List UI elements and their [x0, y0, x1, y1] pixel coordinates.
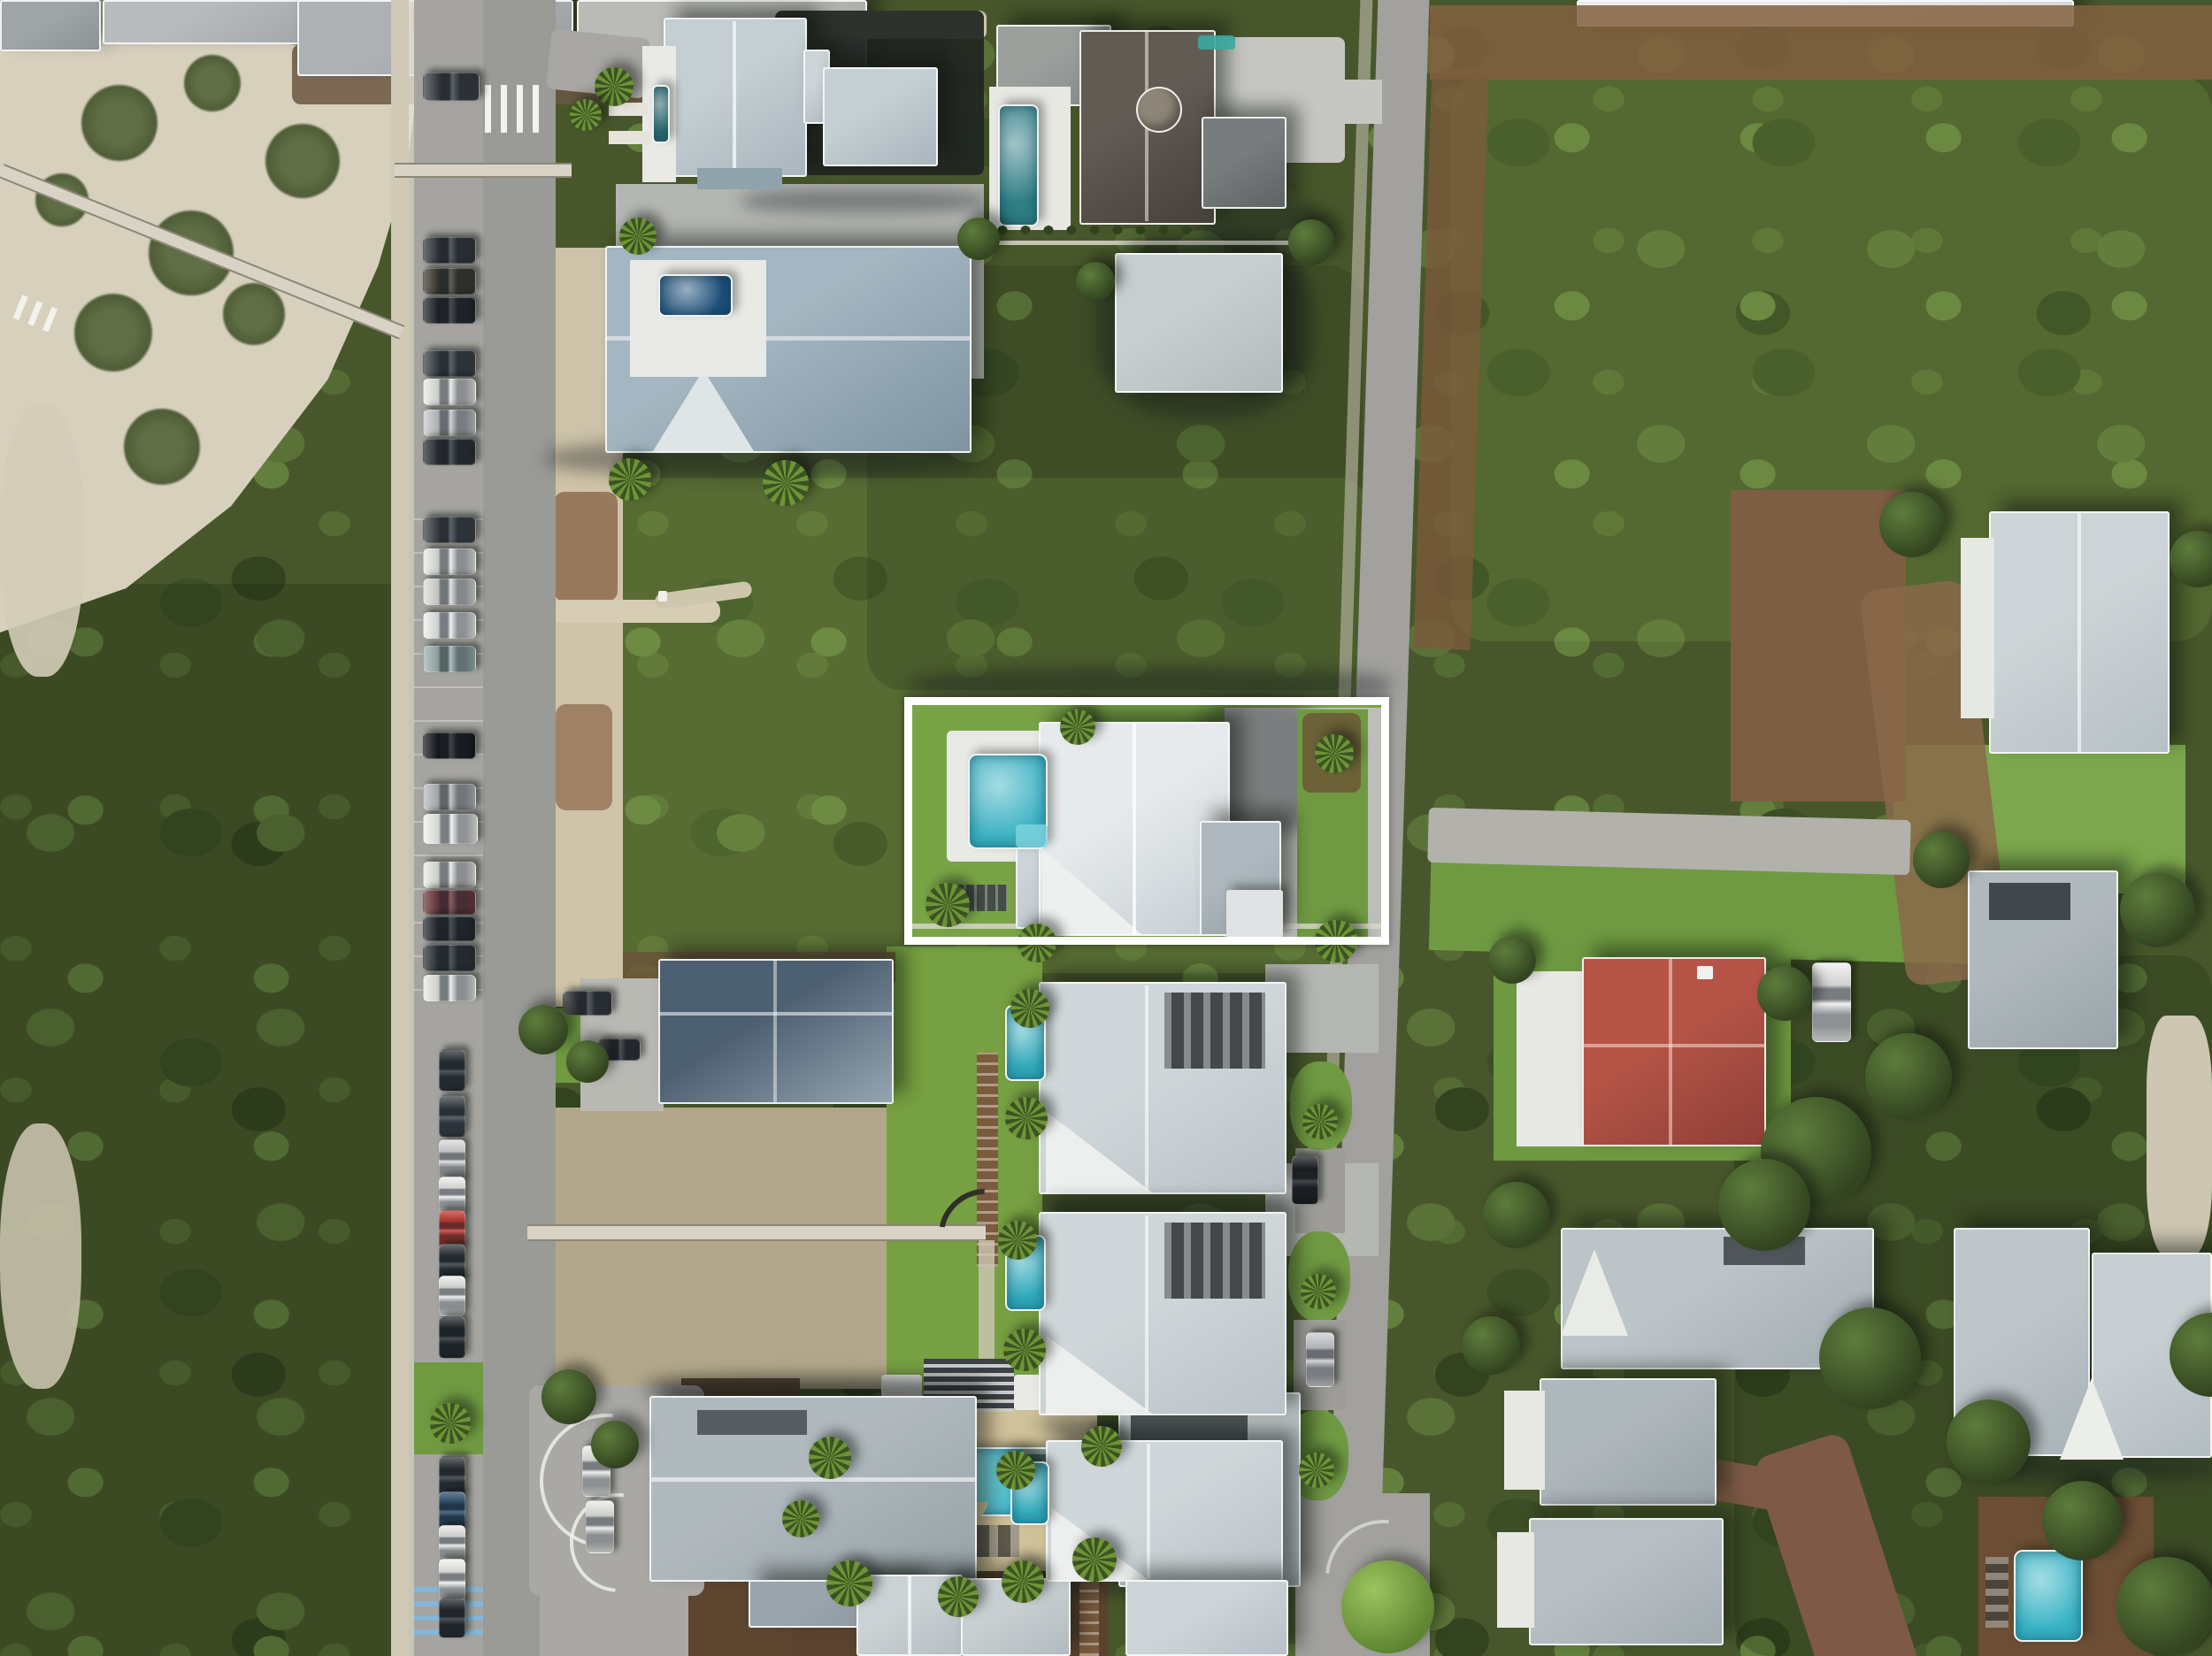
house-h3-ridge [1147, 1444, 1150, 1578]
mansion-east-wing [1202, 117, 1286, 209]
parked-car [439, 1598, 465, 1638]
parked-car [439, 1095, 465, 1138]
vacant-lot-patchy [527, 1108, 892, 1389]
palm-tree [938, 1576, 979, 1617]
parked-car [423, 379, 476, 405]
dune-sand-low [0, 1123, 81, 1389]
palm-tree [1010, 989, 1049, 1028]
tree [1879, 492, 1945, 557]
parked-car [423, 268, 476, 295]
tree [1947, 1399, 2031, 1483]
garage-t4 [1115, 253, 1283, 393]
corner-building-roof [103, 0, 303, 44]
palm-tree [1002, 1560, 1044, 1603]
tree [1718, 1159, 1810, 1251]
bay-parked-car [1306, 1332, 1334, 1387]
parked-car [423, 784, 476, 810]
house-t1-ridge [733, 21, 736, 173]
parked-car [423, 579, 476, 605]
redhouse-ridge [1584, 1044, 1764, 1047]
palm-tree [996, 1451, 1035, 1490]
house-h1-ridge [1145, 985, 1148, 1191]
driveway-car-dark [1292, 1155, 1318, 1205]
dune-scrub [81, 85, 157, 161]
t1-walk-path [609, 131, 651, 144]
house-g3 [1529, 1518, 1724, 1645]
highlight-border [904, 697, 1389, 945]
redhouse [1582, 957, 1766, 1146]
palm-tree [619, 218, 657, 255]
palm-tree [782, 1500, 819, 1537]
trail-post [658, 591, 667, 602]
parked-car [439, 1139, 465, 1182]
parked-car [423, 732, 476, 759]
bikes-teal [1198, 35, 1235, 50]
boardwalk-horizontal [527, 1224, 986, 1241]
parked-car [423, 646, 476, 672]
house-r2-solar [1989, 883, 2070, 920]
ground-shadow [741, 189, 989, 212]
palm-tree [1005, 1097, 1048, 1139]
aerial-photo-stage [0, 0, 2212, 1656]
pool-r4 [2014, 1550, 2083, 1642]
house-t1-guest [823, 67, 938, 166]
t1-pool [652, 85, 670, 143]
house-r1-porch [1961, 538, 1994, 718]
palm-tree [1301, 1274, 1336, 1309]
parked-car [439, 1316, 465, 1359]
house-w1-ridge [773, 959, 777, 1102]
t2-driveway-stub [1290, 80, 1382, 124]
tree [2120, 872, 2195, 947]
tree [1819, 1307, 1921, 1409]
tree [1288, 219, 1334, 265]
tree [1462, 1316, 1520, 1375]
tree [1483, 1182, 1549, 1248]
r3-sand-patch [2147, 1016, 2212, 1256]
parked-car [423, 350, 476, 377]
palm-tree [998, 1221, 1037, 1260]
palm-tree [609, 458, 651, 501]
palm-tree [809, 1437, 851, 1479]
house-h2-roofdeck [1164, 1223, 1265, 1299]
parked-car [439, 1276, 465, 1316]
palm-tree [595, 67, 634, 106]
courtyard-left-ext [540, 1591, 688, 1656]
palm-tree [1299, 1453, 1334, 1488]
mansion-pool [998, 104, 1039, 226]
dune-sand-mid [0, 402, 84, 677]
lime-tree [1341, 1560, 1434, 1653]
tree [2042, 1481, 2122, 1560]
beach-boardwalk [395, 163, 572, 178]
courtyard-car [563, 991, 612, 1016]
house-r1-ridge [2078, 513, 2081, 752]
house-h2-ridge [1145, 1215, 1148, 1412]
tree [1488, 936, 1536, 984]
parked-car [423, 975, 476, 1001]
left-sidewalk [391, 0, 409, 1656]
parked-car [423, 548, 476, 575]
dune-scrub [184, 55, 241, 111]
palm-tree [1072, 1537, 1117, 1582]
parked-car [439, 1049, 465, 1092]
palm-tree [1302, 1104, 1338, 1139]
parked-car [423, 439, 476, 465]
palm-tree [570, 99, 602, 131]
palm-tree [1003, 1329, 1046, 1371]
left-road-yellow-dash [517, 0, 521, 1656]
veg-tint-left-dark [0, 584, 403, 1656]
t3-pool [658, 274, 733, 317]
house-g2-porch [1504, 1391, 1545, 1490]
parked-van [423, 814, 478, 844]
parked-car [423, 73, 480, 101]
redhouse-chimney [1697, 966, 1713, 979]
parked-car [423, 297, 476, 324]
topright-dirt [1430, 5, 2212, 80]
tree [1076, 262, 1115, 301]
parked-car [423, 517, 476, 543]
dirt-patch-shoulder [556, 704, 612, 810]
corner-building-roof [0, 0, 101, 51]
tree [957, 218, 1000, 260]
house-b3-ridge [908, 1576, 911, 1654]
parked-car [423, 410, 476, 436]
tree [1865, 1033, 1952, 1120]
tree [1757, 966, 1812, 1021]
mansion-turret [1136, 87, 1182, 133]
dune-scrub [223, 283, 285, 345]
white-van-r2 [1812, 962, 1851, 1042]
palm-tree [763, 460, 809, 506]
courtyard-car-white [586, 1500, 614, 1553]
parked-car [423, 612, 476, 639]
parked-car [423, 945, 476, 971]
dune-scrub [124, 409, 200, 485]
dune-scrub [265, 124, 340, 198]
house-h4-partial [1125, 1580, 1288, 1656]
redhouse-ridge [1669, 959, 1672, 1145]
dirt-patch-shoulder [554, 492, 618, 602]
tree [541, 1369, 596, 1424]
tree [591, 1421, 639, 1468]
palm-tree [826, 1560, 872, 1606]
parked-car [423, 237, 476, 264]
parked-car [423, 890, 476, 915]
tree [2116, 1557, 2212, 1656]
road-apron-stripes [485, 85, 543, 133]
palm-tree [430, 1403, 471, 1444]
parked-car [423, 916, 476, 941]
house-h1-roofdeck [1164, 993, 1265, 1069]
house-b1-ridge [649, 1477, 977, 1482]
palm-tree [1081, 1426, 1122, 1467]
tree [518, 1005, 568, 1054]
mansion-hedge-row [991, 221, 1199, 242]
tree [1913, 832, 1970, 888]
dune-scrub [74, 294, 152, 372]
mansion-fence [972, 241, 1294, 245]
pool-r4-loungers [1985, 1557, 2008, 1628]
parked-car [423, 862, 476, 888]
tree [566, 1040, 609, 1083]
house-g3-porch [1497, 1532, 1534, 1628]
redhouse-porch [1517, 971, 1589, 1146]
house-t1-south-wall [697, 168, 782, 189]
house-g2 [1540, 1378, 1717, 1506]
house-b1-rooftop [697, 1410, 807, 1435]
